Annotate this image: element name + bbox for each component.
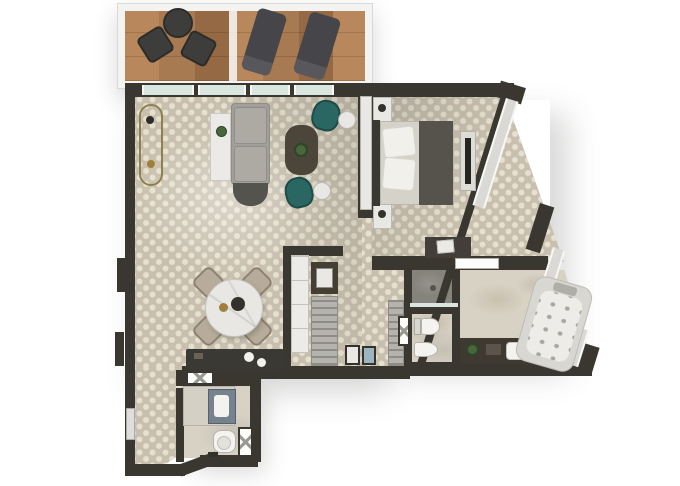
balcony-divider <box>229 6 237 84</box>
floor-mat <box>208 452 218 457</box>
entry-corridor-floor <box>133 368 182 472</box>
counter-sink <box>244 352 254 362</box>
shower-glass <box>410 303 458 307</box>
bar-counter <box>186 349 284 369</box>
toilet-tank <box>414 318 421 335</box>
powder-sink-basin <box>214 395 229 417</box>
wall-bedroom-top <box>372 83 514 97</box>
sofa-cushion <box>234 146 267 182</box>
sofa-console <box>210 113 231 181</box>
patio-table <box>163 8 193 38</box>
wall-kitchenette <box>283 250 291 368</box>
counter-tray <box>194 353 203 359</box>
entry-door <box>126 408 135 440</box>
balcony-glass-door <box>198 85 246 95</box>
coffee-table-plant <box>294 143 308 157</box>
bathroom-door <box>455 258 499 269</box>
sofa-cushion <box>234 107 267 144</box>
nightstand-lamp <box>378 104 386 112</box>
ice-bucket <box>362 346 376 365</box>
side-table <box>313 182 331 200</box>
side-table <box>338 111 356 129</box>
bed-runner <box>419 121 453 205</box>
console-decor-dark <box>146 116 154 124</box>
console-plant <box>216 126 227 137</box>
white-wardrobe <box>291 255 309 353</box>
wall-wc-bath <box>452 268 460 368</box>
coffee-station <box>345 345 360 365</box>
dining-table-bowl <box>231 297 245 311</box>
powder-room-door <box>186 371 214 385</box>
powder-toilet-seat <box>217 436 231 450</box>
floor-plan <box>0 0 680 486</box>
bed-pillow <box>382 125 417 158</box>
tv-screen <box>465 138 471 184</box>
toilet <box>421 318 440 335</box>
balcony-glass-door <box>294 85 334 95</box>
bed-pillow <box>382 157 417 192</box>
balcony-glass-door <box>250 85 290 95</box>
jacuzzi-basin <box>524 288 584 364</box>
counter-sink <box>257 358 266 367</box>
open-shelving <box>311 296 338 366</box>
dining-table-cup <box>219 303 228 312</box>
wc-door <box>398 316 410 346</box>
vanity-plant <box>466 343 479 356</box>
wall-bottom-corridor <box>125 464 185 476</box>
built-in-wardrobe <box>360 96 372 210</box>
bench-towel <box>436 239 454 253</box>
nightstand-lamp <box>378 210 386 218</box>
wall-pilaster <box>115 332 124 366</box>
hall-door <box>238 427 253 457</box>
console-decor-brass <box>147 160 155 168</box>
bed-headboard <box>372 120 380 206</box>
minibar-appliance <box>316 268 333 288</box>
wall-pilaster <box>117 258 126 292</box>
balcony-glass-door <box>142 85 194 95</box>
vanity-tray <box>486 344 501 355</box>
shower-drain <box>430 285 436 291</box>
bidet <box>414 342 438 357</box>
